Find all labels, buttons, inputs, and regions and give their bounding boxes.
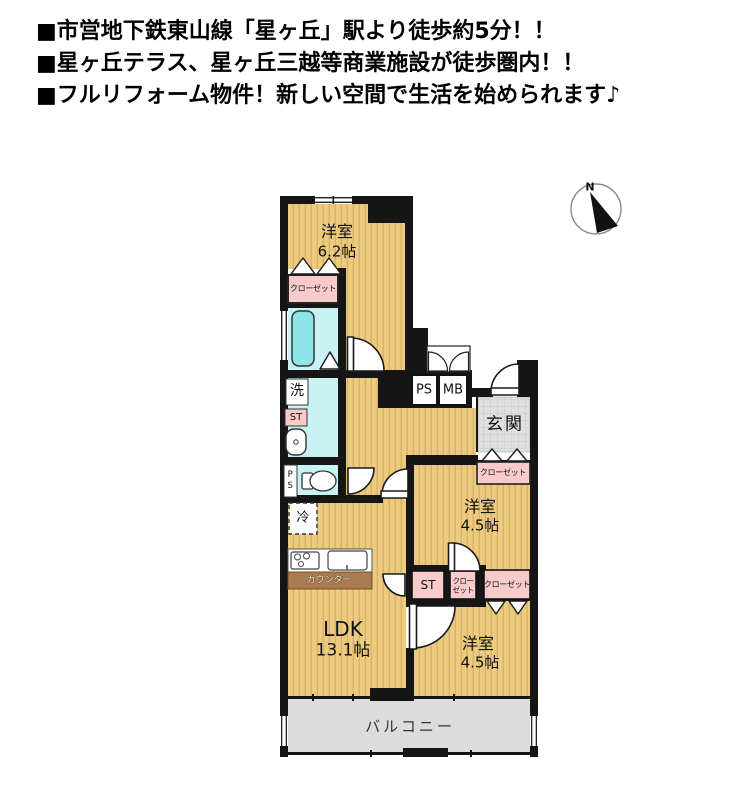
balcony-label: バルコニー [365, 720, 455, 735]
compass [571, 184, 621, 234]
bathtub-icon [292, 311, 314, 366]
window-balcony-right [530, 716, 538, 746]
bedroom-top-area: 6.2帖 [318, 245, 357, 260]
meter-box-label: MB [443, 384, 463, 397]
pipe-space-wc-label: PS [286, 470, 295, 492]
washbasin-icon [286, 429, 306, 455]
counter-label: カウンター [306, 577, 351, 586]
window-top [315, 196, 352, 204]
north-label: N [585, 182, 594, 193]
north-arrow [590, 192, 618, 233]
closet-entrance-label: クローゼット [480, 469, 526, 477]
storage-mid-label: ST [421, 579, 436, 591]
closet-mid-label-1: クロー [453, 577, 474, 585]
bedroom-bottom-area: 4.5帖 [461, 656, 500, 671]
closet-mid-label-2: ゼット [453, 586, 474, 594]
ldk-area: 13.1帖 [316, 643, 371, 660]
washroom-label: 洗 [290, 384, 304, 398]
hall-floor-upper [345, 377, 378, 410]
closet-bottom-label: クローゼット [484, 581, 530, 589]
refrigerator-label: 冷 [296, 512, 309, 525]
closet-top-label: クローゼット [290, 285, 336, 293]
storage-wash-label: ST [290, 413, 302, 423]
stove-icon [291, 552, 319, 569]
bedroom-mid-area: 4.5帖 [461, 519, 500, 534]
toilet-icon [302, 471, 336, 491]
kitchen-sink-icon [328, 551, 367, 570]
bedroom-top-label: 洋室 [321, 224, 353, 240]
pipe-space-label: PS [416, 384, 432, 397]
bedroom-mid-label: 洋室 [464, 499, 496, 515]
bedroom-bottom-label: 洋室 [462, 636, 494, 652]
entrance-label: 玄関 [486, 417, 524, 434]
floor-plan-page: ■市営地下鉄東山線「星ヶ丘」駅より徒歩約5分！！ ■星ヶ丘テラス、星ヶ丘三越等商… [0, 0, 740, 800]
window-bath [280, 311, 288, 360]
window-balcony-left [280, 716, 288, 746]
floor-plan-drawing [0, 0, 740, 800]
ldk-label: LDK [323, 619, 363, 639]
corridor-floor [345, 408, 476, 457]
